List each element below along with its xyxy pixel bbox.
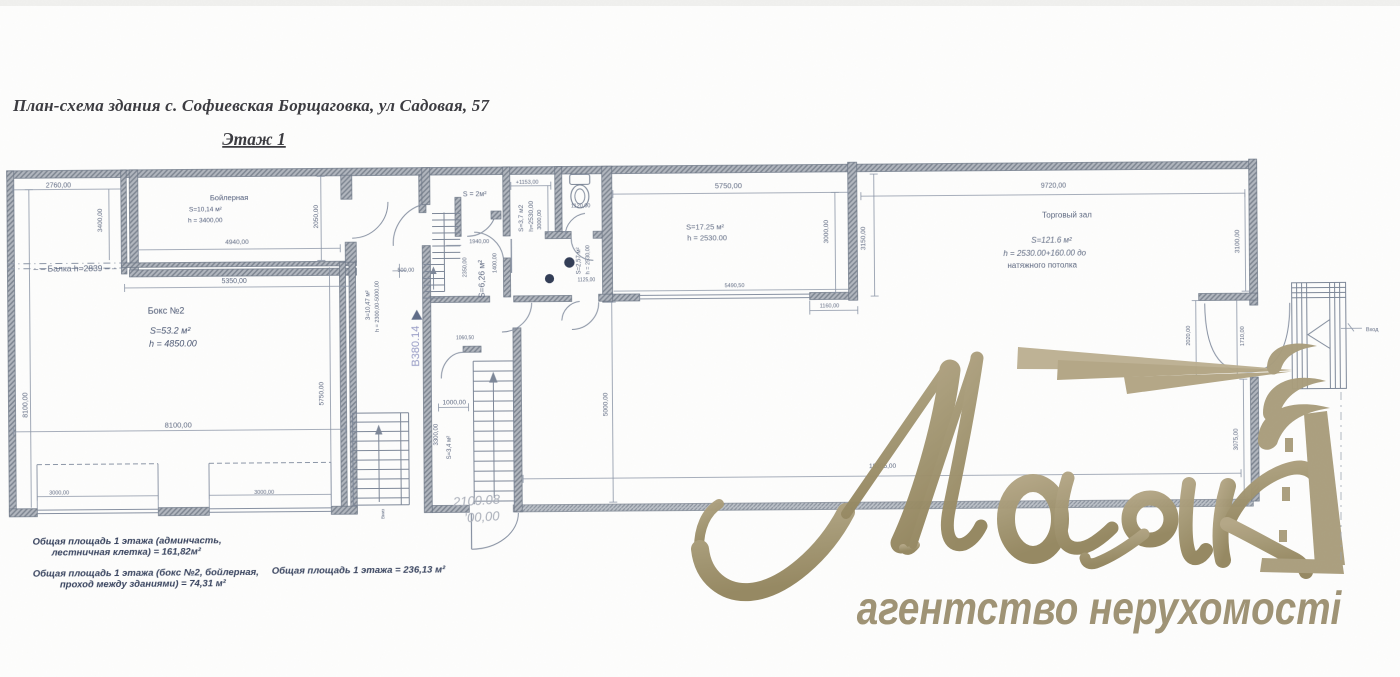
svg-text:агентство нерухомості: агентство нерухомості bbox=[857, 583, 1343, 634]
